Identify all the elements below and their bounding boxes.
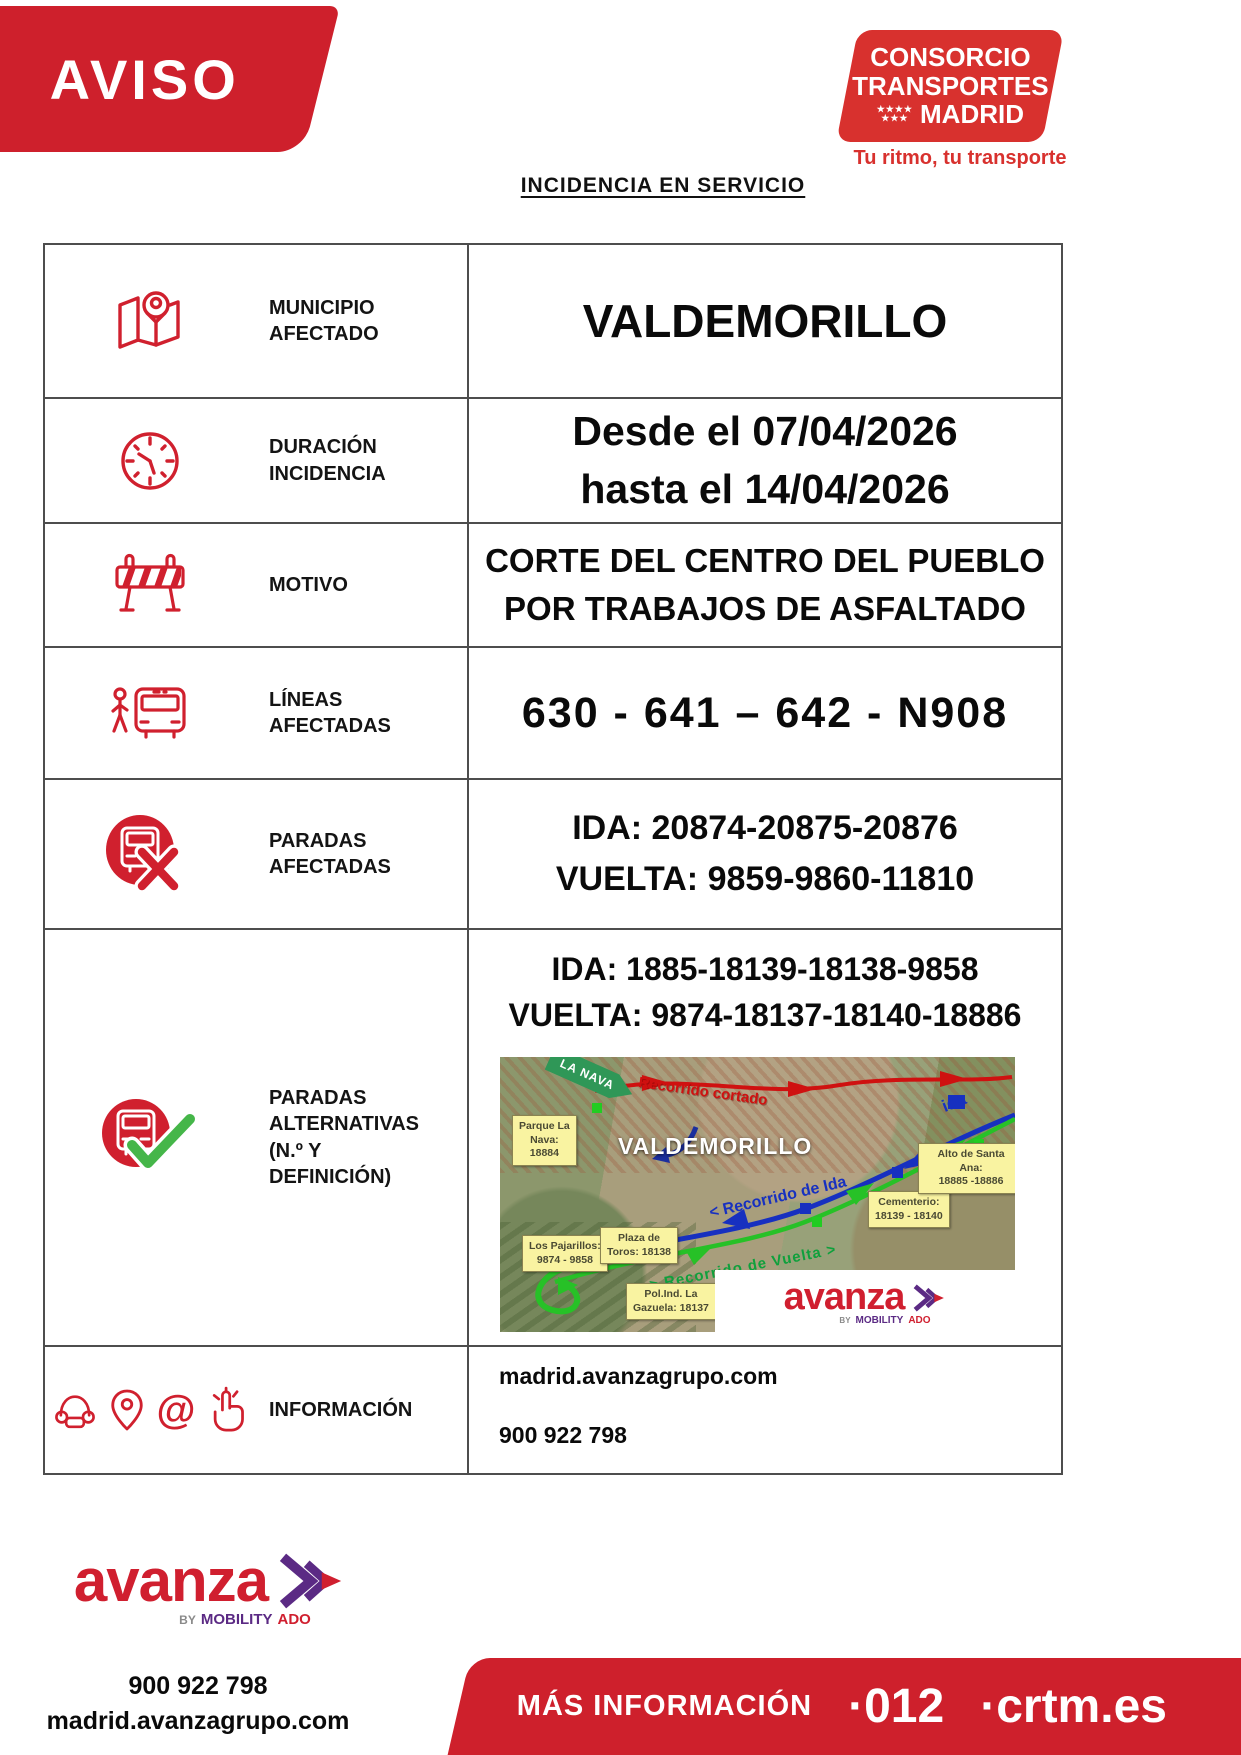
avanza-watermark: avanza BY MOBILITY ADO bbox=[715, 1270, 1015, 1332]
row-lineas: LÍNEAS AFECTADAS 630 - 641 – 642 - N908 bbox=[45, 648, 1061, 780]
ctm-tagline: Tu ritmo, tu transporte bbox=[830, 147, 1090, 170]
callout-alto-de-santa-ana: Alto de Santa Ana: 18885 -18886 bbox=[918, 1143, 1015, 1194]
ctm-line-transportes: TRANSPORTES bbox=[852, 72, 1048, 101]
town-label: VALDEMORILLO bbox=[618, 1133, 812, 1160]
value-paradas-alternativas: IDA: 1885-18139-18138-9858 VUELTA: 9874-… bbox=[509, 930, 1022, 1039]
info-phone: 900 922 798 bbox=[499, 1422, 627, 1449]
avanza-logo: avanza BY MOBILITY ADO bbox=[55, 1546, 365, 1628]
row-paradas-afectadas: PARADAS AFECTADAS IDA: 20874-20875-20876… bbox=[45, 780, 1061, 930]
clock-icon bbox=[115, 426, 185, 496]
tap-hand-icon bbox=[206, 1385, 248, 1435]
footer-phone: 900 922 798 bbox=[28, 1672, 368, 1701]
detour-map: LA NAVA VALDEMORILLO Recorrido cortado <… bbox=[500, 1057, 1015, 1332]
madrid-stars-icon: ★★★★ ★★★ bbox=[876, 106, 912, 124]
map-pin-icon bbox=[112, 288, 188, 354]
callout-pol-ind-la-gazuela: Pol.Ind. La Gazuela: 18137 bbox=[626, 1283, 716, 1320]
row-municipio: MUNICIPIO AFECTADO VALDEMORILLO bbox=[45, 245, 1061, 399]
info-web: madrid.avanzagrupo.com bbox=[499, 1363, 778, 1390]
row-paradas-alternativas: PARADAS ALTERNATIVAS (N.º Y DEFINICIÓN) … bbox=[45, 930, 1061, 1347]
location-pin-icon bbox=[108, 1386, 146, 1434]
crtm-website: ·crtm.es bbox=[980, 1679, 1167, 1734]
incident-table: MUNICIPIO AFECTADO VALDEMORILLO bbox=[43, 243, 1063, 1475]
row-motivo: MOTIVO CORTE DEL CENTRO DEL PUEBLO POR T… bbox=[45, 524, 1061, 648]
row-informacion: @ INFORMACIÓN madrid.avanzagrupo.com 900… bbox=[45, 1347, 1061, 1473]
avanza-wordmark: avanza bbox=[74, 1546, 268, 1615]
value-lineas: 630 - 641 – 642 - N908 bbox=[469, 648, 1061, 778]
label-paradas-afectadas: PARADAS AFECTADAS bbox=[255, 828, 467, 881]
roadworks-barrier-icon bbox=[111, 553, 189, 617]
avanza-arrow-icon bbox=[912, 1284, 946, 1312]
ctm-line-madrid: MADRID bbox=[920, 100, 1024, 129]
callout-plaza-de-toros: Plaza de Toros: 18138 bbox=[600, 1227, 678, 1264]
aviso-poster: AVISO CONSORCIO TRANSPORTES ★★★★ ★★★ MAD… bbox=[0, 0, 1241, 1755]
mas-informacion-label: MÁS INFORMACIÓN bbox=[517, 1690, 812, 1723]
label-motivo: MOTIVO bbox=[255, 572, 467, 598]
label-informacion: INFORMACIÓN bbox=[255, 1397, 467, 1423]
avanza-arrow-icon bbox=[276, 1553, 346, 1609]
label-lineas: LÍNEAS AFECTADAS bbox=[255, 687, 467, 740]
bus-stop-alternative-icon bbox=[98, 1095, 202, 1181]
at-icon: @ bbox=[156, 1390, 195, 1430]
row-duracion: DURACIÓN INCIDENCIA Desde el 07/04/2026 … bbox=[45, 399, 1061, 524]
footer-web: madrid.avanzagrupo.com bbox=[28, 1707, 368, 1736]
ctm-logo-text: CONSORCIO TRANSPORTES ★★★★ ★★★ MADRID bbox=[852, 43, 1048, 129]
callout-cementerio: Cementerio: 18139 - 18140 bbox=[868, 1191, 950, 1228]
aviso-title: AVISO bbox=[4, 47, 240, 112]
mas-informacion-banner: MÁS INFORMACIÓN ·012 ·crtm.es bbox=[445, 1658, 1241, 1755]
ctm-logo: CONSORCIO TRANSPORTES ★★★★ ★★★ MADRID bbox=[836, 30, 1064, 142]
value-paradas-afectadas: IDA: 20874-20875-20876 VUELTA: 9859-9860… bbox=[469, 780, 1061, 928]
bus-stop-cancelled-icon bbox=[102, 812, 198, 896]
value-municipio: VALDEMORILLO bbox=[469, 245, 1061, 397]
value-motivo: CORTE DEL CENTRO DEL PUEBLO POR TRABAJOS… bbox=[469, 524, 1061, 646]
callout-parque-la-nava: Parque La Nava: 18884 bbox=[512, 1115, 577, 1166]
avanza-wordmark: avanza bbox=[784, 1276, 905, 1319]
value-duracion: Desde el 07/04/2026 hasta el 14/04/2026 bbox=[469, 399, 1061, 522]
label-duracion: DURACIÓN INCIDENCIA bbox=[255, 434, 467, 487]
aviso-banner: AVISO bbox=[0, 6, 340, 152]
callout-los-pajarillos: Los Pajarillos: 9874 - 9858 bbox=[522, 1235, 608, 1272]
pedestrian-bus-icon bbox=[108, 681, 192, 745]
phone-012: ·012 bbox=[848, 1679, 944, 1734]
ctm-line-consorcio: CONSORCIO bbox=[852, 43, 1048, 72]
label-municipio: MUNICIPIO AFECTADO bbox=[255, 295, 467, 348]
page-title: INCIDENCIA EN SERVICIO bbox=[85, 174, 1241, 198]
label-paradas-alternativas: PARADAS ALTERNATIVAS (N.º Y DEFINICIÓN) bbox=[255, 1085, 467, 1191]
phone-icon bbox=[52, 1386, 98, 1434]
